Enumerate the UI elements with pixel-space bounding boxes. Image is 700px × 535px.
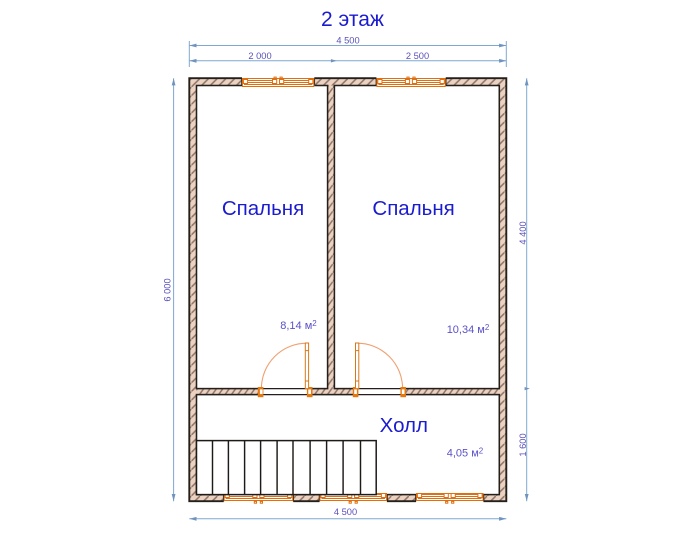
svg-text:10,34 м2: 10,34 м2: [447, 323, 490, 336]
svg-text:4,05 м2: 4,05 м2: [447, 447, 484, 460]
svg-text:4 500: 4 500: [336, 36, 359, 46]
svg-text:4 500: 4 500: [334, 507, 357, 517]
svg-text:2 500: 2 500: [406, 51, 429, 61]
svg-text:1 600: 1 600: [518, 433, 528, 456]
svg-text:6 000: 6 000: [162, 278, 172, 301]
svg-text:8,14 м2: 8,14 м2: [280, 319, 317, 332]
svg-text:Спальня: Спальня: [372, 197, 454, 220]
svg-text:4 400: 4 400: [518, 221, 528, 244]
svg-text:2 этаж: 2 этаж: [321, 8, 384, 31]
svg-text:Спальня: Спальня: [222, 197, 304, 220]
svg-text:Холл: Холл: [380, 414, 428, 437]
svg-text:2 000: 2 000: [248, 51, 271, 61]
